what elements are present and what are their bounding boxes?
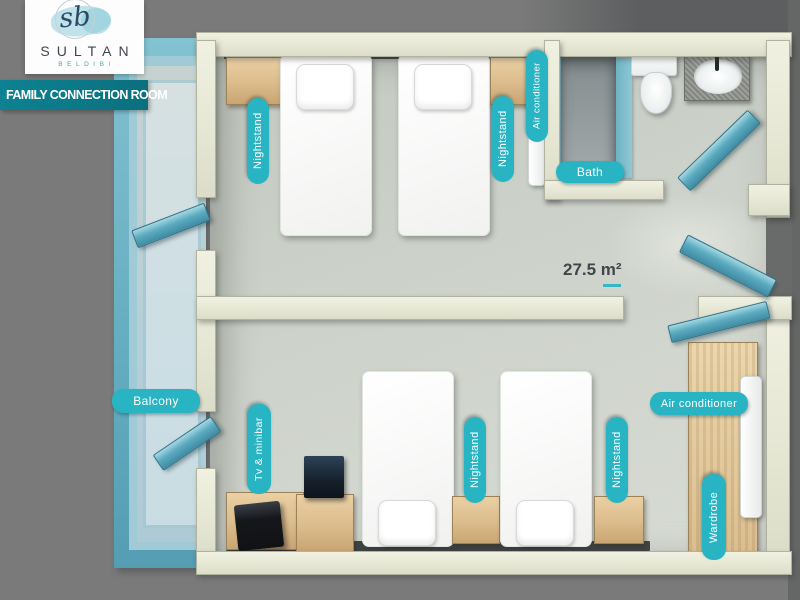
area-underline — [603, 284, 621, 287]
left-wall-upper — [196, 40, 216, 198]
background-top-right-shade — [520, 0, 788, 33]
label-text: Tv & minibar — [253, 417, 265, 481]
bed-2-pillow — [414, 64, 472, 110]
nightstand-3 — [452, 496, 500, 544]
label-air-conditioner-bottom: Air conditioner — [650, 392, 748, 415]
tv — [234, 501, 285, 552]
label-text: Nightstand — [497, 111, 509, 168]
brand-name: SULTAN — [25, 43, 144, 59]
brand-subname: BELDIBI — [25, 61, 144, 68]
label-nightstand-3: Nightstand — [464, 417, 486, 503]
label-text: Nightstand — [252, 113, 264, 170]
label-text: Air conditioner — [661, 398, 737, 410]
label-text: Balcony — [133, 394, 179, 408]
nightstand-4 — [594, 496, 644, 544]
banner-title: FAMILY CONNECTION ROOM — [0, 80, 148, 110]
label-text: Nightstand — [469, 432, 481, 489]
label-tv-minibar: Tv & minibar — [247, 404, 271, 494]
label-text: Air conditioner — [532, 63, 543, 130]
floor-plan-image: Nightstand Nightstand Air conditioner Ba… — [0, 0, 800, 600]
left-wall-lower — [196, 468, 216, 558]
label-nightstand-4: Nightstand — [606, 417, 628, 503]
label-text: Wardrobe — [708, 491, 720, 542]
bed-4-pillow — [516, 500, 574, 546]
label-text: Bath — [577, 165, 603, 179]
area-label: 27.5 m² — [563, 260, 622, 280]
logo-monogram: sb — [53, 0, 96, 40]
bed-3-pillow — [378, 500, 436, 546]
label-bath: Bath — [556, 161, 624, 183]
shower-wall-right — [616, 46, 632, 178]
shower-floor — [560, 55, 618, 177]
sink-faucet — [715, 55, 719, 71]
label-nightstand-1: Nightstand — [247, 98, 269, 184]
top-wall — [196, 32, 792, 57]
label-wardrobe: Wardrobe — [702, 474, 726, 560]
right-wall-lower — [766, 296, 790, 558]
minibar-box — [304, 456, 344, 498]
minibar-cabinet — [296, 494, 354, 552]
label-nightstand-2: Nightstand — [492, 96, 514, 182]
label-balcony: Balcony — [112, 389, 200, 413]
bathroom-wall-horizontal — [544, 180, 664, 200]
toilet-bowl — [640, 72, 672, 114]
logo-box: sb SULTAN BELDIBI — [25, 0, 144, 74]
bed-1-pillow — [296, 64, 354, 110]
left-wall-middle — [196, 250, 216, 412]
label-air-conditioner-top: Air conditioner — [526, 50, 548, 142]
room-type-banner: FAMILY CONNECTION ROOM — [0, 80, 148, 110]
right-wall-stub — [748, 184, 790, 216]
middle-wall-left — [196, 296, 624, 320]
label-text: Nightstand — [611, 432, 623, 489]
